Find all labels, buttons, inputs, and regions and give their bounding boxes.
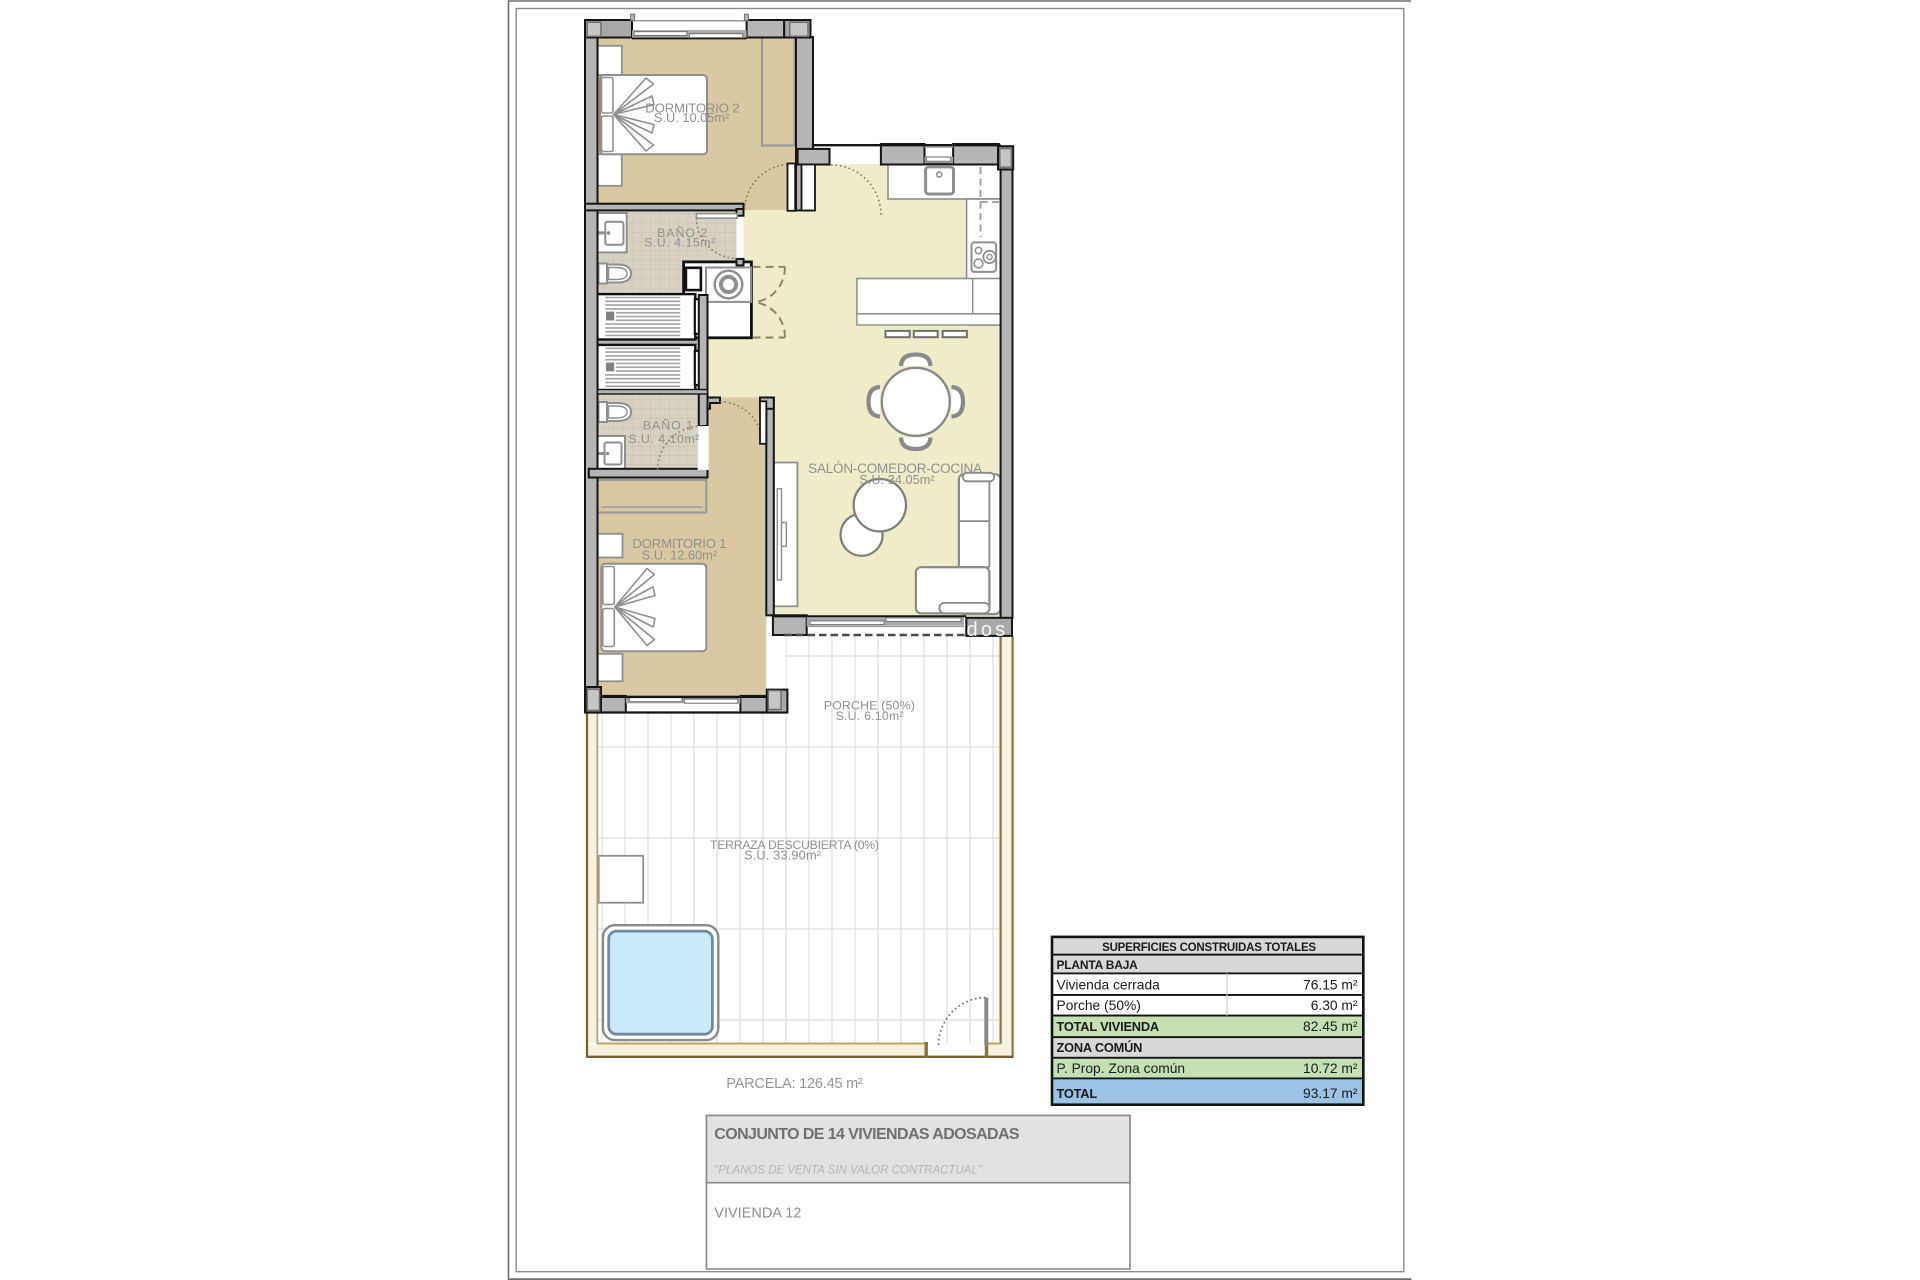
- svg-text:S.U. 34.05m²: S.U. 34.05m²: [859, 472, 935, 487]
- svg-text:P. Prop. Zona común: P. Prop. Zona común: [1057, 1061, 1186, 1076]
- svg-text:S.U. 33.90m²: S.U. 33.90m²: [744, 847, 822, 862]
- svg-text:82.45 m²: 82.45 m²: [1303, 1019, 1358, 1034]
- svg-text:dos: dos: [967, 619, 1009, 641]
- svg-text:S.U. 6.10m²: S.U. 6.10m²: [836, 709, 904, 723]
- svg-text:S.U. 10.05m²: S.U. 10.05m²: [654, 110, 730, 125]
- svg-text:10.72 m²: 10.72 m²: [1303, 1061, 1358, 1076]
- svg-text:"PLANOS DE VENTA SIN VALOR CON: "PLANOS DE VENTA SIN VALOR CONTRACTUAL": [714, 1164, 983, 1176]
- svg-text:TOTAL: TOTAL: [1057, 1086, 1098, 1101]
- svg-text:93.17 m²: 93.17 m²: [1303, 1086, 1358, 1101]
- svg-text:CONJUNTO DE 14 VIVIENDAS ADOSA: CONJUNTO DE 14 VIVIENDAS ADOSADAS: [714, 1126, 1020, 1143]
- svg-text:SUPERFICIES CONSTRUIDAS TOTALE: SUPERFICIES CONSTRUIDAS TOTALES: [1102, 942, 1316, 954]
- svg-text:76.15 m²: 76.15 m²: [1303, 977, 1358, 992]
- svg-text:6.30 m²: 6.30 m²: [1311, 998, 1358, 1013]
- svg-text:ZONA COMÚN: ZONA COMÚN: [1057, 1040, 1143, 1055]
- svg-text:PLANTA BAJA: PLANTA BAJA: [1057, 958, 1139, 972]
- svg-text:S.U. 4.15m²: S.U. 4.15m²: [644, 236, 716, 250]
- svg-text:S.U. 4.10m²: S.U. 4.10m²: [628, 432, 700, 446]
- svg-text:BAÑO 1: BAÑO 1: [643, 419, 694, 433]
- svg-text:Porche (50%): Porche (50%): [1057, 998, 1141, 1013]
- svg-text:S.U. 12.60m²: S.U. 12.60m²: [642, 548, 718, 563]
- svg-text:VIVIENDA 12: VIVIENDA 12: [714, 1206, 801, 1222]
- svg-text:Vivienda cerrada: Vivienda cerrada: [1057, 977, 1161, 992]
- svg-text:TOTAL VIVIENDA: TOTAL VIVIENDA: [1057, 1019, 1159, 1034]
- svg-text:PARCELA: 126.45 m²: PARCELA: 126.45 m²: [726, 1076, 863, 1092]
